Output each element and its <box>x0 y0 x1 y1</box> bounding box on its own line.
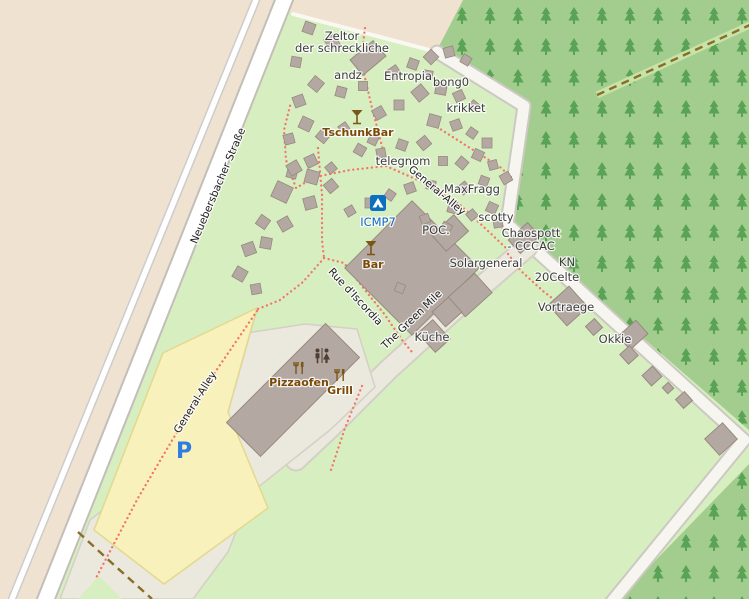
toilets-woman-head <box>325 349 329 353</box>
tent <box>443 46 455 58</box>
tent <box>487 159 498 170</box>
tent <box>260 237 273 250</box>
tent <box>439 157 448 166</box>
knife-blade <box>342 369 345 374</box>
label-okkie: Okkie <box>599 332 632 346</box>
tent <box>290 56 302 68</box>
label-scotty: scotty <box>478 210 513 224</box>
tent <box>394 100 404 110</box>
label-pizzaofen: Pizzaofen <box>269 376 329 389</box>
toilets-man-head <box>316 349 320 353</box>
label-maxfragg: MaxFragg <box>444 182 500 196</box>
label-krikket: krikket <box>446 101 486 115</box>
parking-letter: P <box>176 439 192 464</box>
label-vortraege: Vortraege <box>538 300 594 314</box>
tent <box>359 82 368 91</box>
campsite-icon <box>370 195 386 211</box>
label-tschunkbar: TschunkBar <box>322 126 394 139</box>
tent <box>335 86 347 98</box>
label-der-schreckliche: der schreckliche <box>295 41 389 55</box>
label-poc-: POC. <box>422 223 450 237</box>
label-solargeneral: Solargeneral <box>450 256 523 270</box>
label-k-che: Küche <box>415 330 450 344</box>
tent <box>304 169 320 185</box>
label--cccac: - CCCAC <box>507 239 555 253</box>
label-bar: Bar <box>362 258 384 271</box>
label-entropia: Entropia <box>384 69 432 83</box>
label-andz: andz <box>334 68 362 82</box>
tent <box>303 196 318 211</box>
label-chaospott: Chaospott <box>502 226 561 240</box>
label-20celte: 20Celte <box>535 270 580 284</box>
tent <box>427 114 442 129</box>
label-icmp7: ICMP7 <box>360 215 396 229</box>
map-viewport[interactable]: P Zeltorder schrecklicheandzEntropiabong… <box>0 0 749 599</box>
tent <box>283 133 295 145</box>
tent <box>250 283 262 295</box>
label-kn: KN <box>559 255 575 269</box>
tent <box>482 138 492 148</box>
label-telegnom: telegnom <box>376 154 431 168</box>
knife-blade <box>301 362 304 367</box>
parking-icon: P <box>176 439 192 464</box>
label-bong0: bong0 <box>433 75 469 89</box>
label-grill: Grill <box>327 384 353 397</box>
map-svg[interactable]: P Zeltorder schrecklicheandzEntropiabong… <box>0 0 749 599</box>
